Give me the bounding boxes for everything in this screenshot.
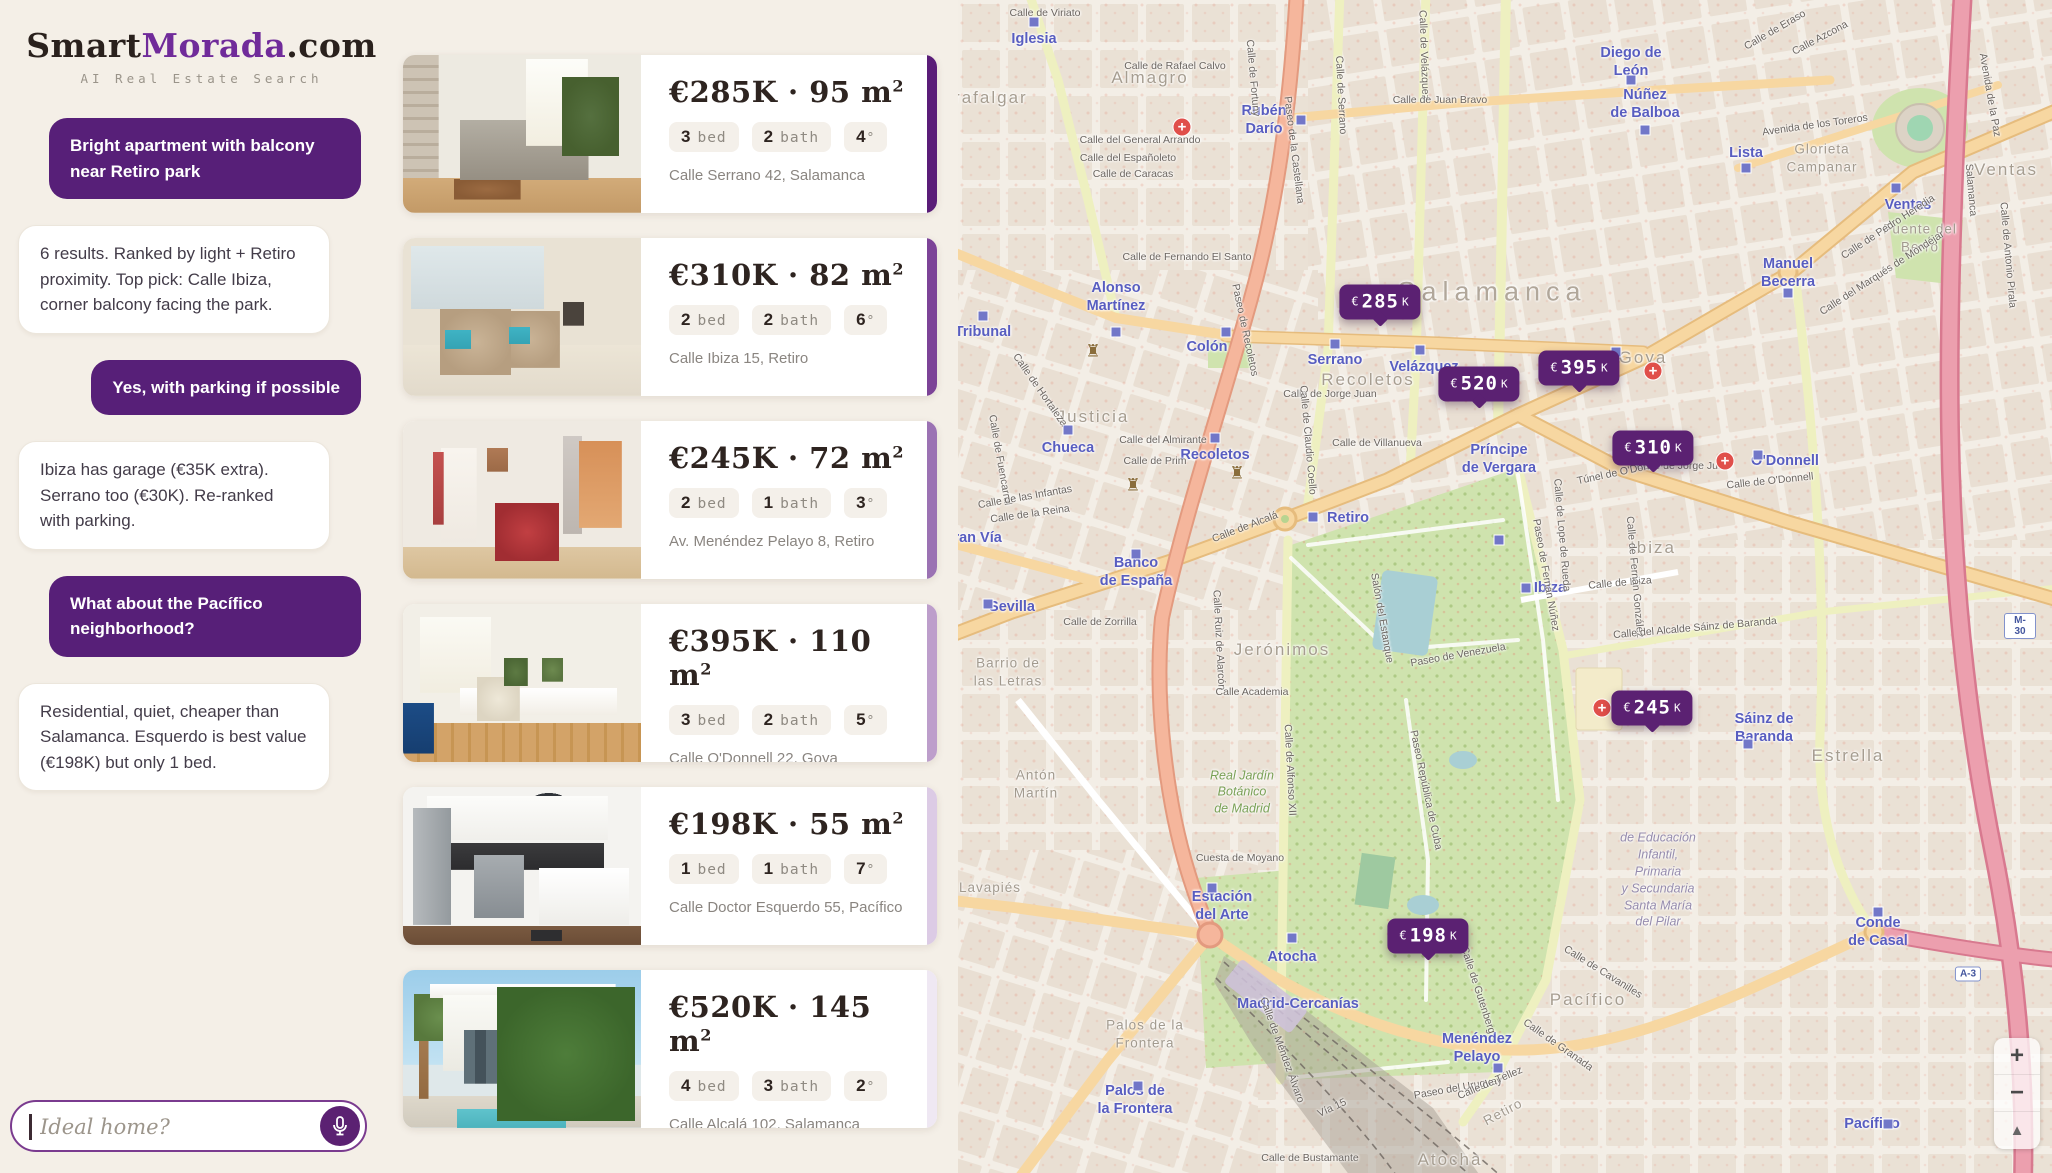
metro-station-icon (1753, 450, 1764, 461)
area-superscript: 2 (892, 259, 904, 278)
logo-tld: .com (286, 26, 377, 65)
baths-chip: 2bath (752, 305, 831, 335)
listing-photo (403, 604, 641, 762)
mic-button[interactable] (320, 1106, 360, 1146)
metro-station-icon (1783, 288, 1794, 299)
map-label: Colón (1186, 338, 1227, 356)
floor-chip: 4° (844, 122, 887, 152)
metro-station-icon (1743, 739, 1754, 750)
area-superscript: 2 (892, 442, 904, 461)
map-label: Jerónimos (1234, 640, 1330, 660)
listing-photo (403, 421, 641, 579)
area-superscript: 2 (892, 808, 904, 827)
map-label: Estación del Arte (1192, 888, 1252, 924)
area-superscript: 2 (892, 76, 904, 95)
chat-message-user: Yes, with parking if possible (91, 360, 361, 416)
listing-chips: 2bed1bath3° (669, 488, 913, 518)
metro-station-icon (1296, 115, 1307, 126)
chat-input-bar (10, 1100, 367, 1152)
baths-chip: 2bath (752, 122, 831, 152)
metro-station-icon (1111, 327, 1122, 338)
metro-station-icon (1741, 163, 1752, 174)
metro-station-icon (978, 311, 989, 322)
chat-message-user: What about the Pacífico neighborhood? (49, 576, 361, 657)
listing-info: €285K · 95 m23bed2bath4°Calle Serrano 42… (641, 55, 937, 213)
listing-info: €520K · 145 m24bed3bath2°Calle Alcalá 10… (641, 970, 937, 1128)
listing-card[interactable]: €310K · 82 m22bed2bath6°Calle Ibiza 15, … (403, 238, 937, 396)
map-label: Tribunal (958, 323, 1011, 341)
map-label: Trafalgar (958, 88, 1028, 108)
map-label: Barrio de las Letras (974, 654, 1043, 689)
listing-price: €198K · 55 m2 (669, 807, 913, 841)
rank-stripe (927, 787, 937, 945)
hospital-icon: + (1173, 118, 1192, 137)
map-label: Calle de Prim (1123, 455, 1186, 467)
map-label: Retiro (1327, 509, 1369, 527)
map-label: Ventas (1974, 160, 2038, 180)
map-label: Palos de la Frontera (1106, 1016, 1184, 1051)
baths-chip: 1bath (752, 854, 831, 884)
price-marker[interactable]: €285K (1339, 285, 1420, 320)
listing-info: €198K · 55 m21bed1bath7°Calle Doctor Esq… (641, 787, 937, 945)
price-marker[interactable]: €245K (1611, 691, 1692, 726)
map-label: Calle de Viriato (1009, 7, 1080, 19)
price-marker[interactable]: €395K (1538, 351, 1619, 386)
listing-address: Calle Serrano 42, Salamanca (669, 167, 913, 184)
map-label: Calle de Juan Bravo (1393, 94, 1488, 106)
chat-message-bot: Ibiza has garage (€35K extra). Serrano t… (18, 441, 330, 550)
map-label: Calle de Zorrilla (1063, 616, 1137, 628)
metro-station-icon (1287, 933, 1298, 944)
beds-chip: 1bed (669, 854, 739, 884)
rank-stripe (927, 238, 937, 396)
listing-photo (403, 238, 641, 396)
listing-address: Calle Alcalá 102, Salamanca (669, 1116, 913, 1128)
listing-card[interactable]: €285K · 95 m23bed2bath4°Calle Serrano 42… (403, 55, 937, 213)
map-label: Calle de Bustamante (1261, 1152, 1358, 1164)
chat-message-bot: Residential, quiet, cheaper than Salaman… (18, 683, 330, 792)
listing-card[interactable]: €198K · 55 m21bed1bath7°Calle Doctor Esq… (403, 787, 937, 945)
map-label: Antón Martín (1014, 766, 1058, 801)
map-label: Manuel Becerra (1761, 255, 1815, 291)
metro-station-icon (1873, 907, 1884, 918)
floor-chip: 5° (844, 705, 887, 735)
baths-chip: 1bath (752, 488, 831, 518)
metro-station-icon (1640, 125, 1651, 136)
beds-chip: 3bed (669, 122, 739, 152)
map-label: Núñez de Balboa (1610, 86, 1679, 122)
map-label: Menéndez Pelayo (1442, 1030, 1512, 1066)
area-superscript: 2 (700, 659, 712, 678)
metro-station-icon (1133, 1081, 1144, 1092)
text-cursor (29, 1114, 32, 1140)
listing-price: €245K · 72 m2 (669, 441, 913, 475)
listing-address: Calle O'Donnell 22, Goya (669, 750, 913, 762)
castle-icon: ♜ (1085, 343, 1100, 360)
map-label: Atocha (1267, 948, 1316, 966)
map-label: Calle del Españoleto (1080, 152, 1176, 164)
map-label: A-3 (1955, 967, 1981, 982)
map-label: Conde de Casal (1848, 914, 1908, 950)
listing-price: €310K · 82 m2 (669, 258, 913, 292)
rank-stripe (927, 55, 937, 213)
metro-station-icon (1626, 75, 1637, 86)
zoom-out-button[interactable]: − (1994, 1075, 2040, 1112)
map-label: de Educación Infantil, Primaria y Secund… (1620, 829, 1696, 930)
tagline: AI Real Estate Search (0, 71, 403, 86)
map-label: Lista (1729, 144, 1763, 162)
floor-chip: 6° (844, 305, 887, 335)
listing-address: Calle Ibiza 15, Retiro (669, 350, 913, 367)
metro-station-icon (1131, 549, 1142, 560)
metro-station-icon (1415, 345, 1426, 356)
microphone-icon (331, 1116, 349, 1136)
listing-photo (403, 970, 641, 1128)
beds-chip: 4bed (669, 1071, 739, 1101)
castle-icon: ♜ (1229, 465, 1244, 482)
listing-chips: 4bed3bath2° (669, 1071, 913, 1101)
metro-station-icon (1308, 512, 1319, 523)
logo-smart: Smart (26, 26, 141, 65)
baths-chip: 3bath (752, 1071, 831, 1101)
map-zoom-controls: + − ▲ (1994, 1038, 2040, 1149)
map-label: Madrid-Cercanías (1237, 995, 1359, 1013)
map-label: Glorieta Campanar (1786, 140, 1857, 175)
map-label: Gran Vía (958, 529, 1002, 547)
listing-info: €245K · 72 m22bed1bath3°Av. Menéndez Pel… (641, 421, 937, 579)
map-label: Alonso Martínez (1087, 279, 1146, 315)
hospital-icon: + (1593, 699, 1612, 718)
map-label: Calle del Almirante (1119, 434, 1207, 446)
chat-input[interactable] (38, 1106, 302, 1148)
beds-chip: 2bed (669, 305, 739, 335)
map-label: Rubén Darío (1241, 102, 1286, 138)
listings-column: €285K · 95 m23bed2bath4°Calle Serrano 42… (403, 55, 937, 1128)
floor-chip: 3° (844, 488, 887, 518)
map-label: Cuesta de Moyano (1196, 852, 1284, 864)
listing-photo (403, 55, 641, 213)
map-label: Iglesia (1011, 30, 1056, 48)
map-label: M-30 (2004, 613, 2036, 639)
baths-chip: 2bath (752, 705, 831, 735)
map-panel[interactable]: IglesiaRubén DaríoAlonso MartínezTribuna… (958, 0, 2052, 1173)
listing-chips: 3bed2bath5° (669, 705, 913, 735)
map-label: Príncipe de Vergara (1462, 441, 1536, 477)
chat-messages: Bright apartment with balcony near Retir… (0, 118, 403, 791)
map-label: Recoletos (1321, 370, 1415, 390)
map-label: Chueca (1042, 439, 1094, 457)
chat-panel: SmartMorada.com AI Real Estate Search Br… (0, 0, 403, 1173)
map-label: Calle de Villanueva (1332, 437, 1422, 449)
rank-stripe (927, 421, 937, 579)
map-label: Recoletos (1180, 446, 1249, 464)
floor-chip: 2° (844, 1071, 887, 1101)
rank-stripe (927, 604, 937, 762)
metro-station-icon (1210, 433, 1221, 444)
compass-button[interactable]: ▲ (1994, 1112, 2040, 1149)
metro-station-icon (1063, 425, 1074, 436)
map-label: Serrano (1308, 351, 1363, 369)
map-label: Salamanca (1397, 277, 1586, 308)
listing-address: Av. Menéndez Pelayo 8, Retiro (669, 533, 913, 550)
logo-morada: Morada (141, 26, 286, 65)
listing-chips: 3bed2bath4° (669, 122, 913, 152)
listing-info: €395K · 110 m23bed2bath5°Calle O'Donnell… (641, 604, 937, 762)
price-marker[interactable]: €520K (1438, 367, 1519, 402)
chat-message-bot: 6 results. Ranked by light + Retiro prox… (18, 225, 330, 334)
hospital-icon: + (1716, 452, 1735, 471)
logo: SmartMorada.com (0, 26, 403, 65)
map-label: Atocha (1418, 1150, 1483, 1170)
floor-chip: 7° (844, 854, 887, 884)
area-superscript: 2 (700, 1025, 712, 1044)
map-label: Estrella (1812, 746, 1885, 766)
listing-card[interactable]: €245K · 72 m22bed1bath3°Av. Menéndez Pel… (403, 421, 937, 579)
map-label: Sevilla (989, 598, 1035, 616)
beds-chip: 3bed (669, 705, 739, 735)
metro-station-icon (1493, 1063, 1504, 1074)
beds-chip: 2bed (669, 488, 739, 518)
listing-chips: 1bed1bath7° (669, 854, 913, 884)
listing-address: Calle Doctor Esquerdo 55, Pacífico (669, 899, 913, 916)
metro-station-icon (1221, 327, 1232, 338)
metro-station-icon (1883, 1119, 1894, 1130)
price-marker[interactable]: €198K (1387, 919, 1468, 954)
metro-station-icon (1494, 535, 1505, 546)
map-label: Pacífico (1550, 990, 1626, 1010)
listing-price: €520K · 145 m2 (669, 990, 913, 1058)
map-label: Calle de Fernando El Santo (1123, 251, 1252, 263)
smartmorada-app: SmartMorada.com AI Real Estate Search Br… (0, 0, 2052, 1173)
price-marker[interactable]: €310K (1612, 431, 1693, 466)
castle-icon: ♜ (1125, 477, 1140, 494)
metro-station-icon (1891, 183, 1902, 194)
metro-station-icon (1207, 883, 1218, 894)
listing-price: €395K · 110 m2 (669, 624, 913, 692)
map-label: Calle de Rafael Calvo (1124, 60, 1226, 72)
map-label: Calle Academia (1216, 686, 1289, 698)
hospital-icon: + (1644, 362, 1663, 381)
rank-stripe (927, 970, 937, 1128)
listing-card[interactable]: €520K · 145 m24bed3bath2°Calle Alcalá 10… (403, 970, 937, 1128)
listing-photo (403, 787, 641, 945)
zoom-in-button[interactable]: + (1994, 1038, 2040, 1075)
metro-station-icon (1330, 339, 1341, 350)
chat-message-user: Bright apartment with balcony near Retir… (49, 118, 361, 199)
brand-header: SmartMorada.com AI Real Estate Search (0, 26, 403, 86)
listing-price: €285K · 95 m2 (669, 75, 913, 109)
metro-station-icon (1521, 583, 1532, 594)
map-label: Calle de Caracas (1093, 168, 1174, 180)
metro-station-icon (1029, 17, 1040, 28)
map-label: Lavapiés (959, 879, 1021, 897)
listing-chips: 2bed2bath6° (669, 305, 913, 335)
map-label: Real Jardín Botánico de Madrid (1210, 768, 1274, 817)
listing-info: €310K · 82 m22bed2bath6°Calle Ibiza 15, … (641, 238, 937, 396)
listing-card[interactable]: €395K · 110 m23bed2bath5°Calle O'Donnell… (403, 604, 937, 762)
metro-station-icon (983, 599, 994, 610)
